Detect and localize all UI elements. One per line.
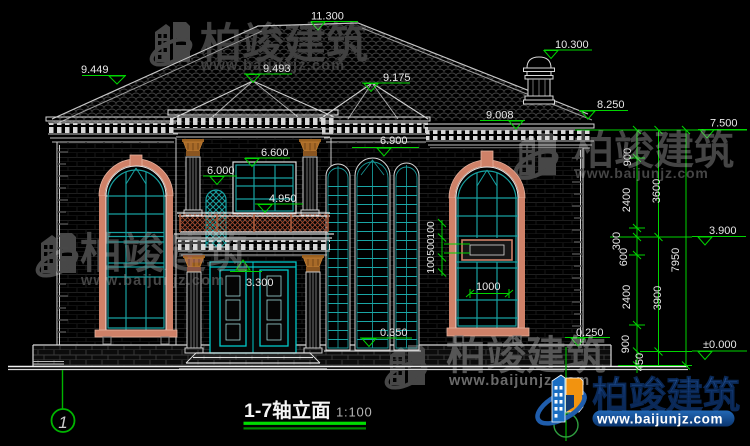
svg-text:4.950: 4.950	[269, 193, 297, 205]
svg-text:500: 500	[425, 238, 437, 256]
svg-text:7950: 7950	[670, 248, 682, 272]
svg-text:6.600: 6.600	[261, 147, 289, 159]
svg-text:100: 100	[425, 221, 437, 239]
svg-text:www.baijunjz.com: www.baijunjz.com	[80, 273, 225, 289]
svg-text:www.baijunjz.com: www.baijunjz.com	[574, 165, 709, 181]
svg-text:9.175: 9.175	[383, 72, 411, 84]
svg-text:1: 1	[58, 413, 67, 432]
svg-text:10.300: 10.300	[555, 39, 589, 51]
svg-text:2400: 2400	[621, 188, 633, 212]
svg-text:柏竣建筑: 柏竣建筑	[80, 230, 248, 277]
svg-text:100: 100	[425, 256, 437, 274]
svg-text:1-7轴立面: 1-7轴立面	[244, 399, 331, 422]
svg-text:柏竣建筑: 柏竣建筑	[446, 334, 606, 378]
svg-text:1000: 1000	[476, 281, 500, 293]
svg-text:6.000: 6.000	[207, 165, 235, 177]
svg-text:450: 450	[634, 353, 646, 371]
svg-text:www.baijunjz.com: www.baijunjz.com	[596, 412, 723, 427]
svg-text:9.449: 9.449	[81, 64, 109, 76]
svg-text:0.350: 0.350	[380, 327, 408, 339]
svg-text:3.300: 3.300	[246, 277, 274, 289]
svg-text:9.008: 9.008	[486, 110, 514, 122]
svg-text:1:100: 1:100	[336, 405, 373, 420]
svg-text:6.900: 6.900	[380, 135, 408, 147]
svg-text:www.baijunjz.com: www.baijunjz.com	[200, 58, 345, 74]
svg-text:300: 300	[611, 232, 623, 250]
svg-text:柏竣建筑: 柏竣建筑	[592, 374, 740, 416]
svg-text:±0.000: ±0.000	[703, 339, 737, 351]
svg-text:7.500: 7.500	[710, 118, 738, 130]
svg-text:8.250: 8.250	[597, 99, 625, 111]
svg-text:3600: 3600	[651, 179, 663, 203]
svg-text:3900: 3900	[652, 286, 664, 310]
svg-text:900: 900	[620, 335, 632, 353]
svg-text:2400: 2400	[621, 285, 633, 309]
svg-text:600: 600	[618, 248, 630, 266]
svg-text:3.900: 3.900	[709, 225, 737, 237]
